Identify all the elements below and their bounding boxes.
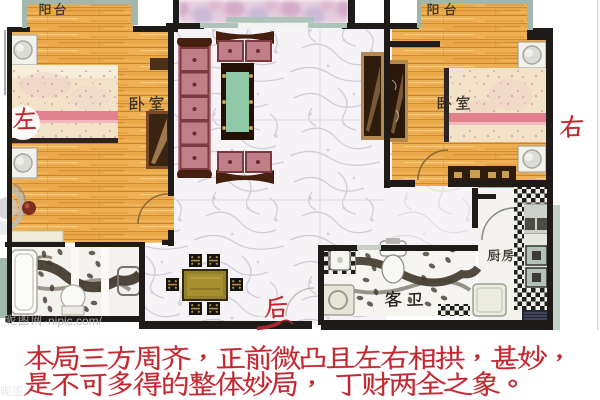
svg-text:·nipic.com/: ·nipic.com/ — [44, 314, 103, 328]
